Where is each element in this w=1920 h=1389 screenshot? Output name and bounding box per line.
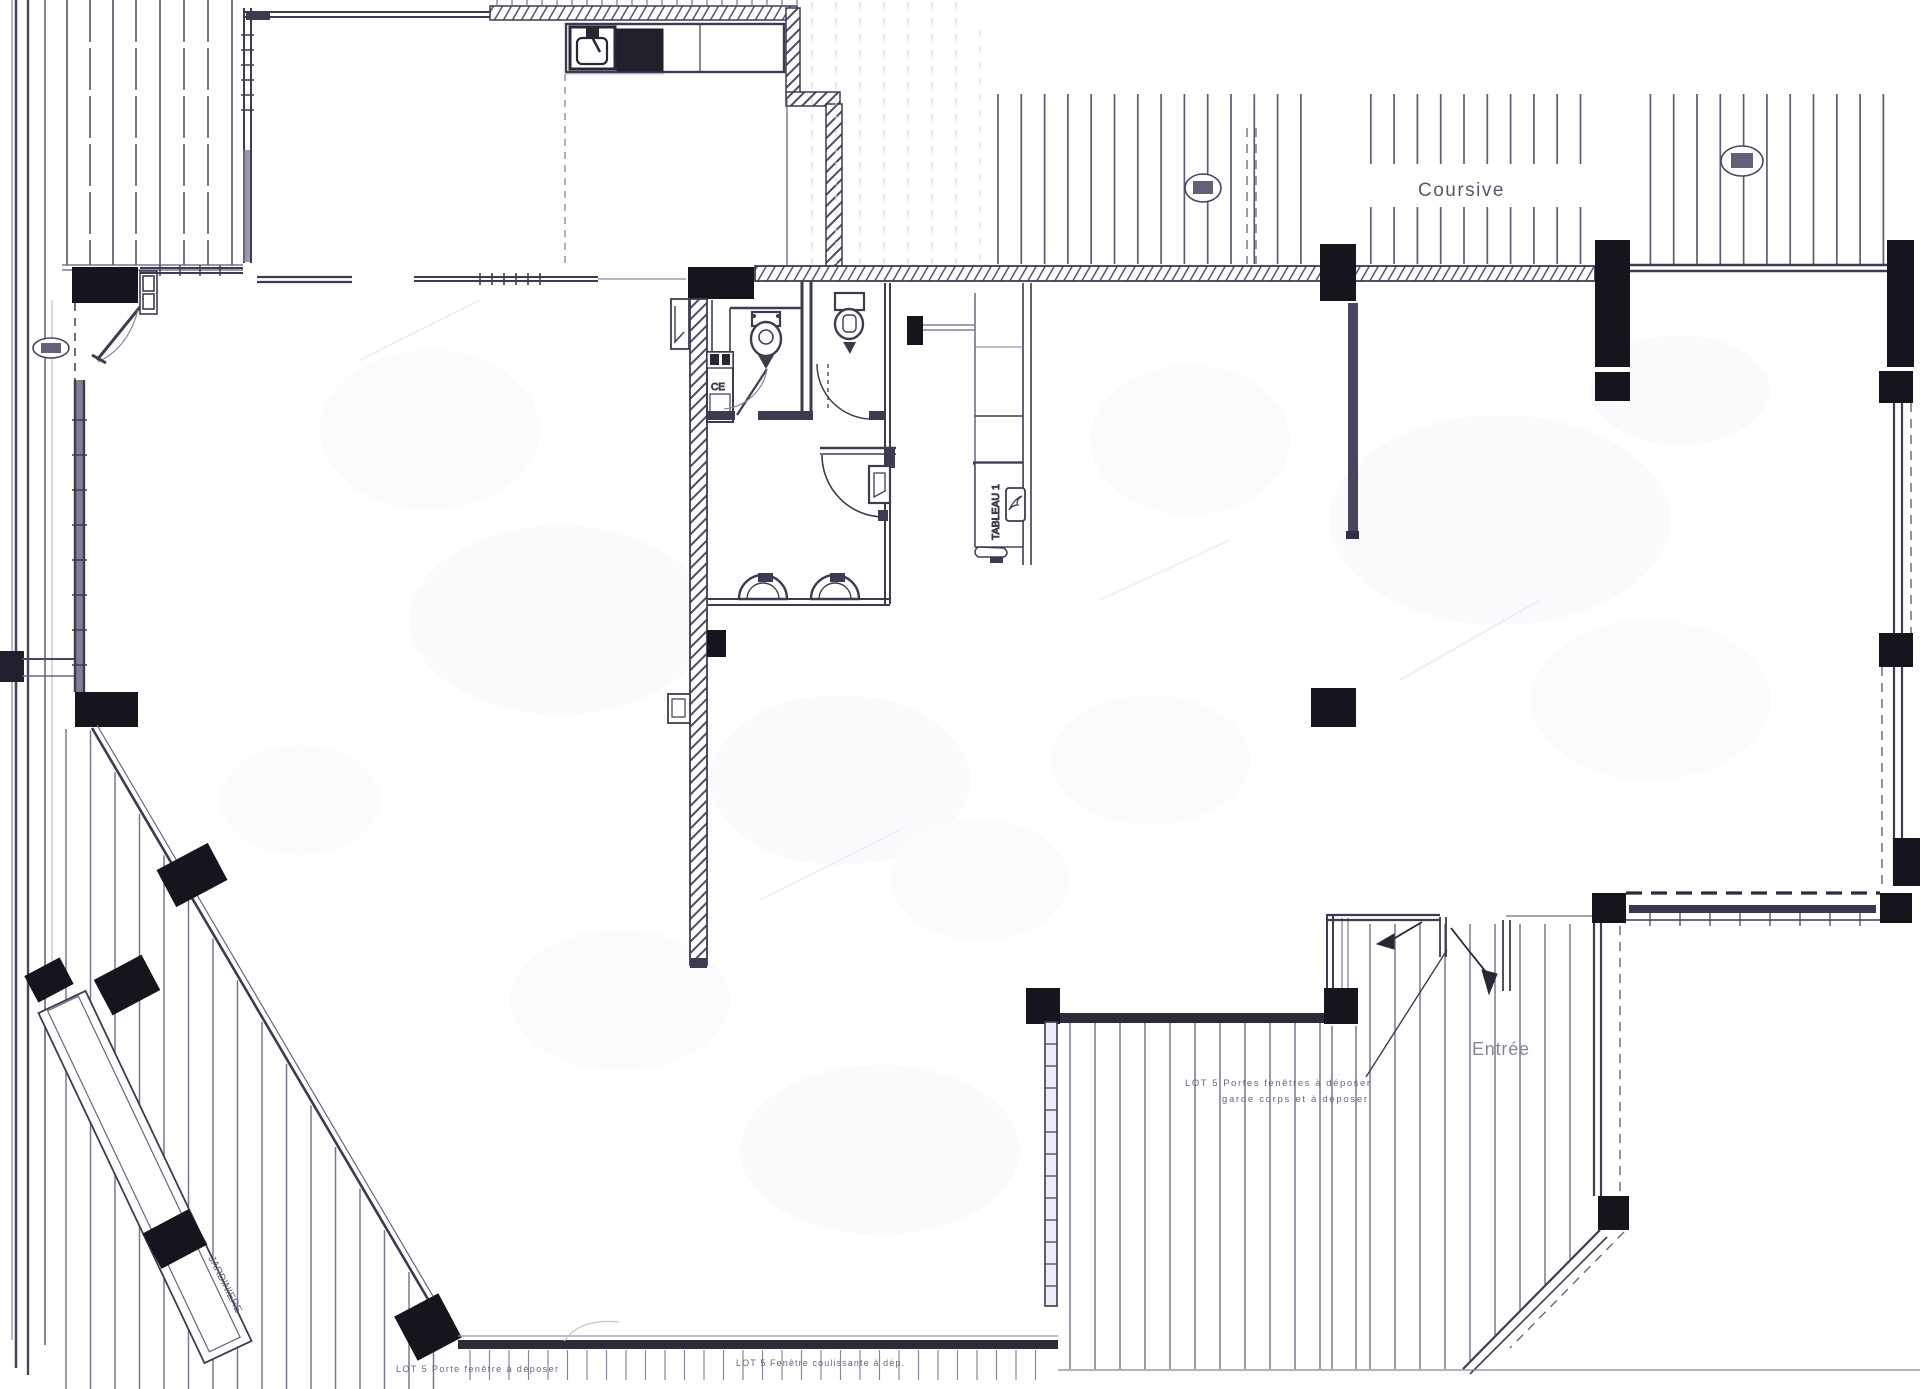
svg-text:Entrée: Entrée — [1472, 1039, 1530, 1059]
svg-text:CE: CE — [711, 382, 725, 393]
svg-text:LOT 5 Portes fenêtres à dépos: LOT 5 Portes fenêtres à déposer — [1185, 1078, 1370, 1089]
svg-text:Coursive: Coursive — [1418, 180, 1505, 201]
svg-text:LOT 5 Fenêtre coulissante à d: LOT 5 Fenêtre coulissante à dép. — [736, 1358, 904, 1368]
svg-text:TABLEAU 1: TABLEAU 1 — [990, 484, 1002, 540]
svg-text:garde corps et à déposer: garde corps et à déposer — [1222, 1094, 1367, 1105]
